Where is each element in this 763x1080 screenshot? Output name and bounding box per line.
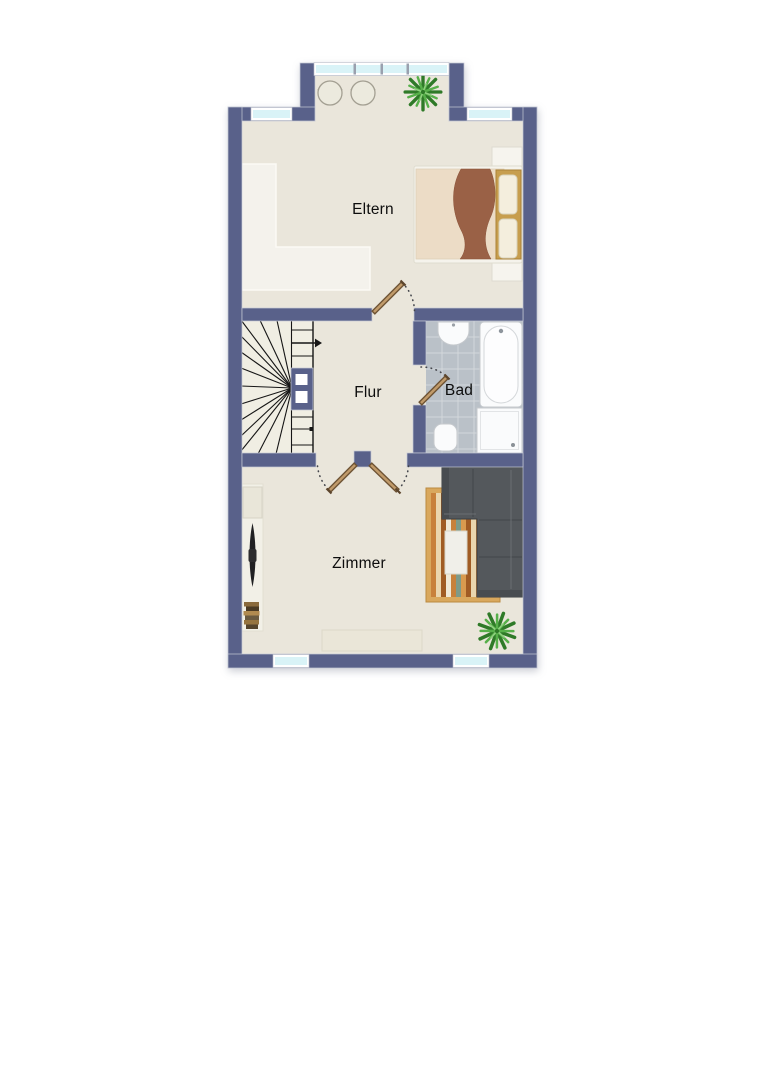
coffee-table [445, 531, 467, 574]
pillow [499, 175, 517, 214]
sink [438, 322, 469, 345]
dormer-window-band [314, 63, 449, 76]
sideboard [322, 630, 422, 651]
nightstand [492, 262, 522, 281]
shelf [243, 487, 262, 518]
window [453, 655, 489, 668]
shower [477, 408, 522, 453]
nightstand [492, 147, 522, 166]
double-bed [414, 147, 522, 281]
room-label-flur: Flur [354, 384, 382, 402]
floor-plan-drawing [0, 0, 763, 1080]
room-label-zimmer: Zimmer [332, 555, 386, 573]
floor-plan-canvas: Eltern Flur Bad Zimmer [0, 0, 763, 1080]
room-label-eltern: Eltern [352, 201, 394, 219]
room-label-bad: Bad [445, 382, 473, 400]
potted-plant [405, 74, 441, 110]
pillow [499, 219, 517, 258]
round-pouf [351, 81, 375, 105]
round-pouf [318, 81, 342, 105]
window [467, 108, 512, 121]
stair-core-wall [291, 368, 313, 410]
toilet [434, 424, 457, 451]
window [251, 108, 292, 121]
tv-unit [242, 484, 263, 631]
window [273, 655, 309, 668]
bathtub [480, 322, 522, 407]
